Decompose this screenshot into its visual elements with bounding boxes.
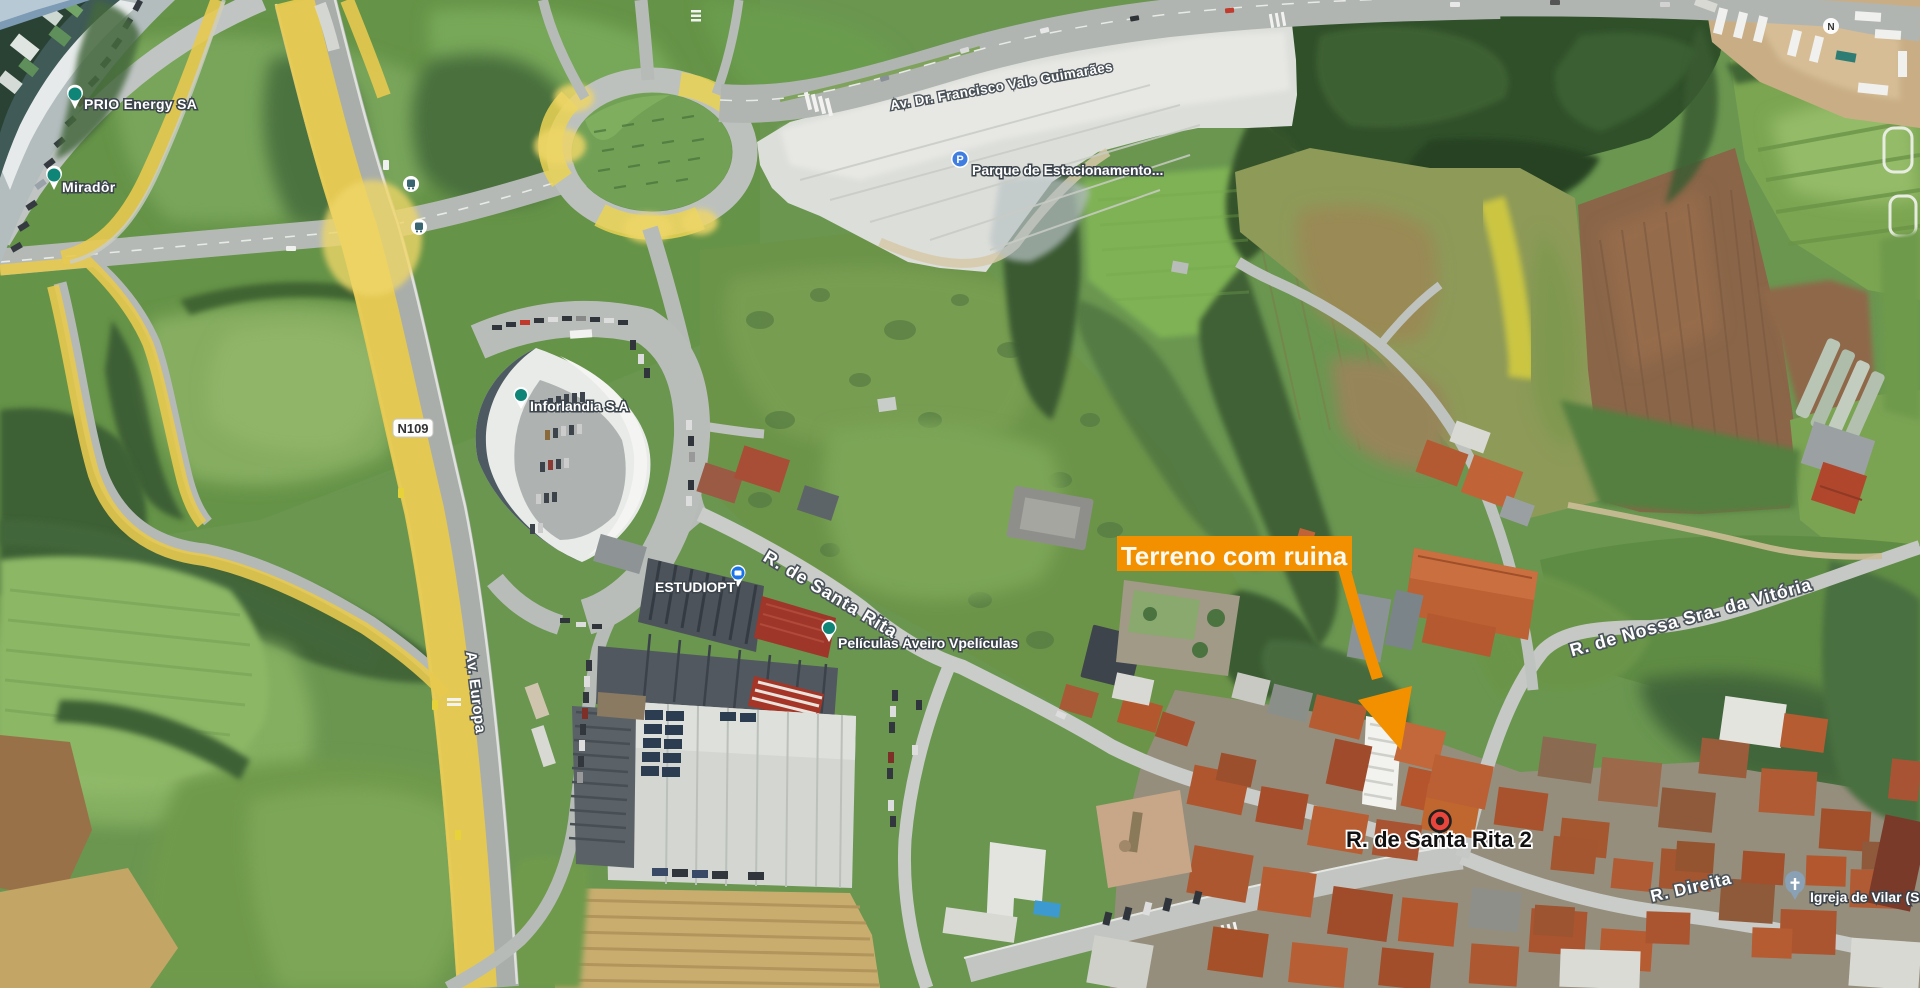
svg-text:N: N xyxy=(1827,22,1834,33)
svg-text:Inforlandia S.A: Inforlandia S.A xyxy=(530,398,629,414)
svg-text:Películas Aveiro Vpelículas: Películas Aveiro Vpelículas xyxy=(838,635,1018,651)
svg-text:R. de Santa Rita 2: R. de Santa Rita 2 xyxy=(1346,827,1532,852)
svg-text:Parque de Estacionamento...: Parque de Estacionamento... xyxy=(972,162,1163,178)
svg-text:N109: N109 xyxy=(397,421,428,436)
svg-text:P: P xyxy=(956,154,963,166)
svg-text:PRIO Energy SA: PRIO Energy SA xyxy=(84,96,197,112)
svg-text:ESTUDIOPT: ESTUDIOPT xyxy=(655,579,736,595)
svg-text:Terreno com ruina: Terreno com ruina xyxy=(1121,541,1348,571)
svg-text:Igreja de Vilar (Sa: Igreja de Vilar (Sa xyxy=(1810,889,1920,905)
svg-text:Miradôr: Miradôr xyxy=(62,179,116,195)
